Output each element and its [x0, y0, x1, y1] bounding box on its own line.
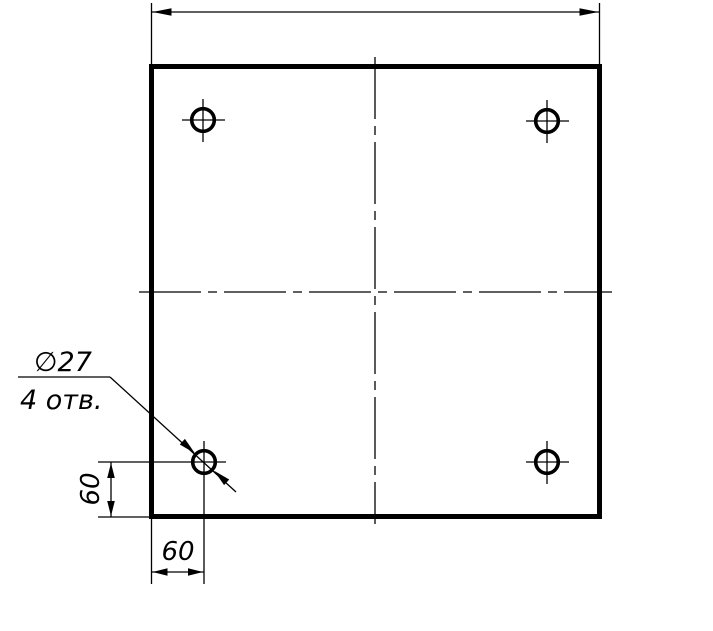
arrowhead-right [580, 8, 599, 16]
hole-bottom-right [526, 441, 569, 484]
arrowhead-right [188, 568, 203, 576]
callout-diameter-label: ∅27 [34, 347, 92, 378]
arrowhead-up [107, 463, 115, 478]
hole-top-left [182, 99, 225, 142]
dimension-value: 60 [76, 472, 106, 505]
dimension-overall-width [152, 3, 600, 64]
dimension-hole-offset-vertical: 60 [76, 462, 149, 517]
arrowhead-to-circle-lower [212, 468, 230, 485]
hole-top-right [526, 100, 569, 143]
arrowhead-left [153, 8, 172, 16]
arrowhead-down [107, 501, 115, 516]
arrowhead-left [153, 568, 168, 576]
dimension-hole-offset-horizontal: 60 [152, 519, 205, 584]
callout-count-label: 4 отв. [20, 385, 103, 416]
drawing-canvas: 60 60 ∅27 4 отв. [0, 0, 713, 631]
dimension-value: 60 [161, 537, 194, 567]
hole-diameter-callout: ∅27 4 отв. [18, 347, 236, 492]
